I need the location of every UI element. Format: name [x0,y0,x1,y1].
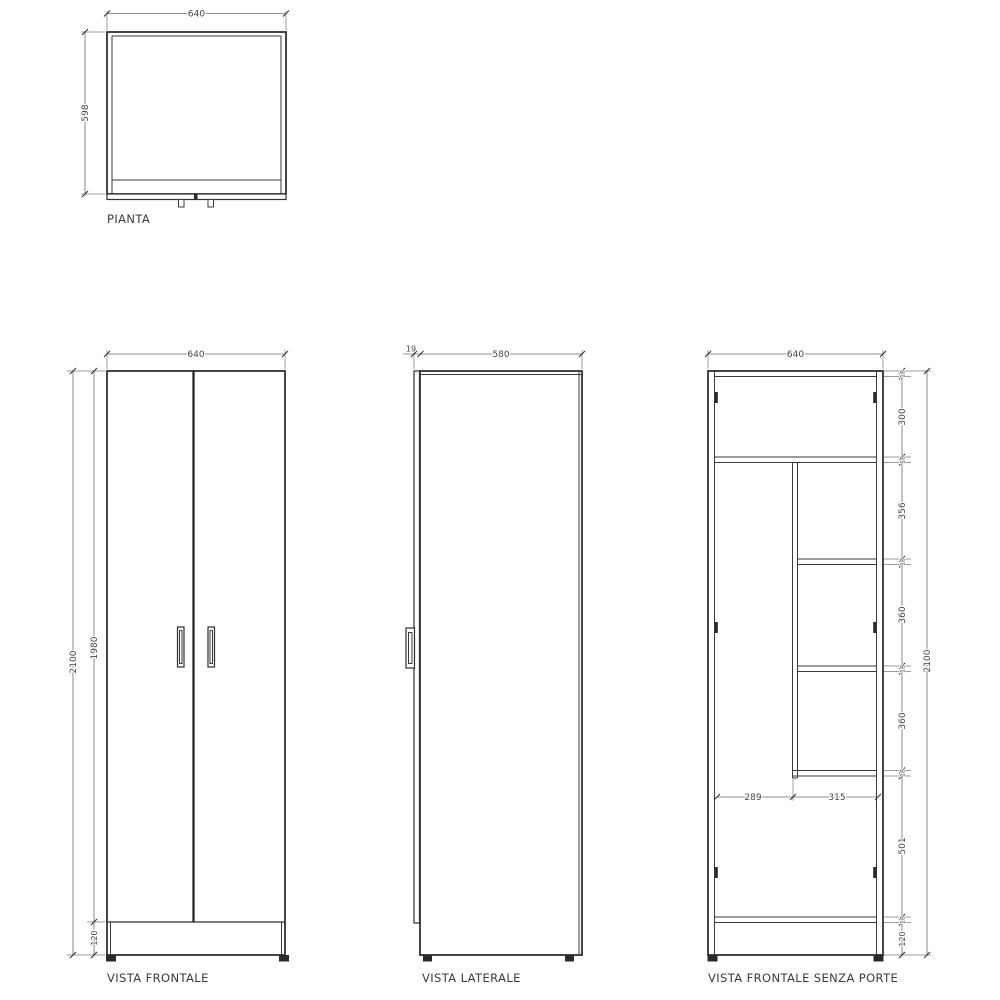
side-foot-back [565,955,574,962]
front-foot-right [279,955,289,962]
side-body [406,371,582,962]
plan-handle-right [208,200,214,208]
side-handle [406,628,415,668]
panel-dim-shelf3: 18 [900,665,907,673]
section-top-dim: 300 [898,408,908,425]
front-body [106,371,289,962]
front-door-height-dim: 1980 [90,636,100,659]
hinge-right-top [873,392,876,403]
hinge-left-middle [715,622,718,633]
plan-door-gap [194,194,198,200]
plan-view-label: PIANTA [107,212,150,226]
panel-dim-bottom-shelf: 18 [900,916,907,924]
front-view-label: VISTA FRONTALE [107,971,209,985]
panel-dim-shelf4: 18 [900,769,907,777]
open-front-body [708,371,884,962]
right-compartment-width-dim: 315 [828,793,845,803]
panel-dim-shelf2: 18 [900,558,907,566]
side-dimensions: 19 580 [403,345,585,370]
section-2-dim: 356 [898,502,908,519]
plan-view: 640 598 PIANTA [81,10,289,227]
open-front-plinth-dim: 120 [898,931,907,946]
plan-handle-left [179,200,185,208]
open-front-foot-right [874,955,884,962]
plan-body [107,32,286,207]
section-bottom-dim: 501 [898,837,908,854]
hinge-left-bottom [715,867,718,878]
plan-depth-dim: 598 [81,104,91,121]
open-front-width-dim: 640 [787,350,804,360]
drawing-svg: 640 598 PIANTA 640 [0,0,1000,1000]
section-3-dim: 360 [898,606,908,623]
front-handle-left [178,627,185,667]
front-width-dim: 640 [187,350,204,360]
side-view-label: VISTA LATERALE [422,971,521,985]
front-plinth-dim: 120 [90,930,99,945]
hinge-left-top [715,392,718,403]
side-depth-dim: 580 [492,350,509,360]
front-handle-right [208,627,215,667]
hinge-right-bottom [873,867,876,878]
front-view: 640 2100 1980 120 VI [67,350,289,985]
plan-width-dim: 640 [188,10,205,20]
front-total-height-dim: 2100 [69,650,79,673]
open-front-foot-left [708,955,718,962]
open-front-height-chain: 18 300 18 356 18 360 18 360 18 501 18 12… [884,368,933,958]
side-door-thickness-dim: 19 [406,345,416,354]
open-front-total-height-dim: 2100 [923,649,933,672]
hinge-right-middle [873,622,876,633]
panel-dim-shelf1: 18 [900,456,907,464]
side-view: 19 580 VISTA LATERALE [403,345,585,986]
section-4-dim: 360 [898,712,908,729]
panel-dim-top: 18 [900,370,907,378]
left-compartment-width-dim: 289 [744,793,761,803]
open-front-view-label: VISTA FRONTALE SENZA PORTE [708,971,898,985]
technical-drawing-sheet: 640 598 PIANTA 640 [0,0,1000,1000]
front-foot-left [106,955,116,962]
open-front-view: 640 [705,350,933,985]
open-front-dimensions-top: 640 [705,350,886,369]
side-foot-front [423,955,432,962]
